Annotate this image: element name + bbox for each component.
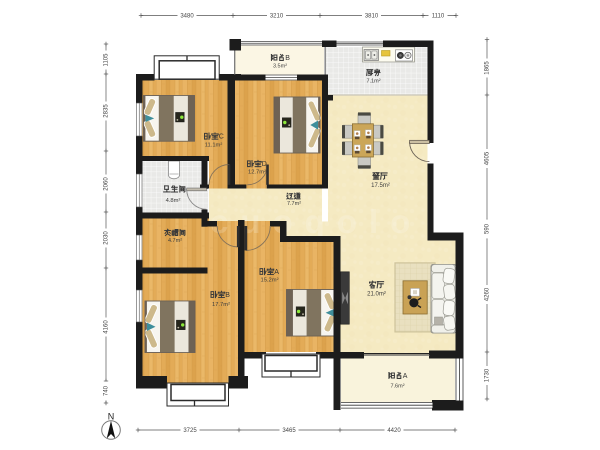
svg-text:7.1m²: 7.1m² [366, 78, 380, 84]
svg-text:B: B [285, 55, 290, 62]
svg-text:1730: 1730 [485, 368, 491, 382]
svg-text:3725: 3725 [183, 428, 197, 434]
svg-text:1105: 1105 [104, 53, 110, 67]
svg-text:3465: 3465 [282, 428, 296, 434]
svg-text:N: N [108, 412, 115, 422]
svg-text:2060: 2060 [104, 177, 110, 191]
svg-text:7.7m²: 7.7m² [287, 201, 301, 207]
svg-text:17.7m²: 17.7m² [212, 302, 230, 308]
svg-text:21.0m²: 21.0m² [367, 292, 386, 298]
svg-text:4420: 4420 [387, 428, 401, 434]
svg-text:4605: 4605 [485, 151, 491, 165]
svg-text:3480: 3480 [180, 14, 194, 20]
svg-text:3210: 3210 [270, 14, 284, 20]
svg-text:15.2m²: 15.2m² [260, 278, 278, 284]
svg-text:C: C [219, 134, 224, 141]
svg-text:740: 740 [104, 385, 110, 396]
svg-text:4.8m²: 4.8m² [166, 198, 181, 204]
svg-text:3810: 3810 [365, 14, 379, 20]
svg-text:1865: 1865 [485, 61, 491, 75]
svg-text:4.7m²: 4.7m² [168, 238, 182, 244]
svg-text:B: B [225, 292, 230, 299]
svg-text:4160: 4160 [104, 320, 110, 334]
svg-text:17.5m²: 17.5m² [371, 183, 390, 189]
svg-text:3.5m²: 3.5m² [273, 63, 287, 69]
svg-text:4260: 4260 [485, 287, 491, 301]
svg-text:7.6m²: 7.6m² [390, 383, 404, 389]
svg-text:11.1m²: 11.1m² [205, 143, 223, 149]
svg-text:A: A [403, 373, 408, 380]
svg-text:A: A [274, 269, 279, 276]
svg-text:590: 590 [485, 223, 491, 234]
svg-text:12.7m²: 12.7m² [248, 170, 266, 176]
svg-text:1110: 1110 [432, 14, 445, 20]
svg-text:2030: 2030 [104, 231, 110, 245]
svg-text:D: D [262, 161, 267, 168]
svg-text:2835: 2835 [104, 104, 110, 118]
